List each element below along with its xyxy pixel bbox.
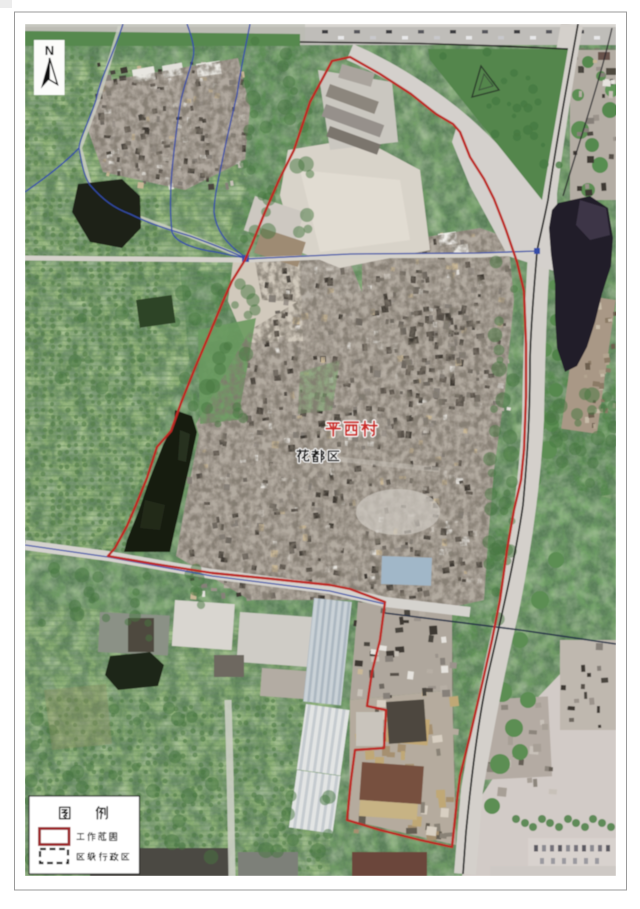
svg-text:N: N	[45, 43, 54, 58]
